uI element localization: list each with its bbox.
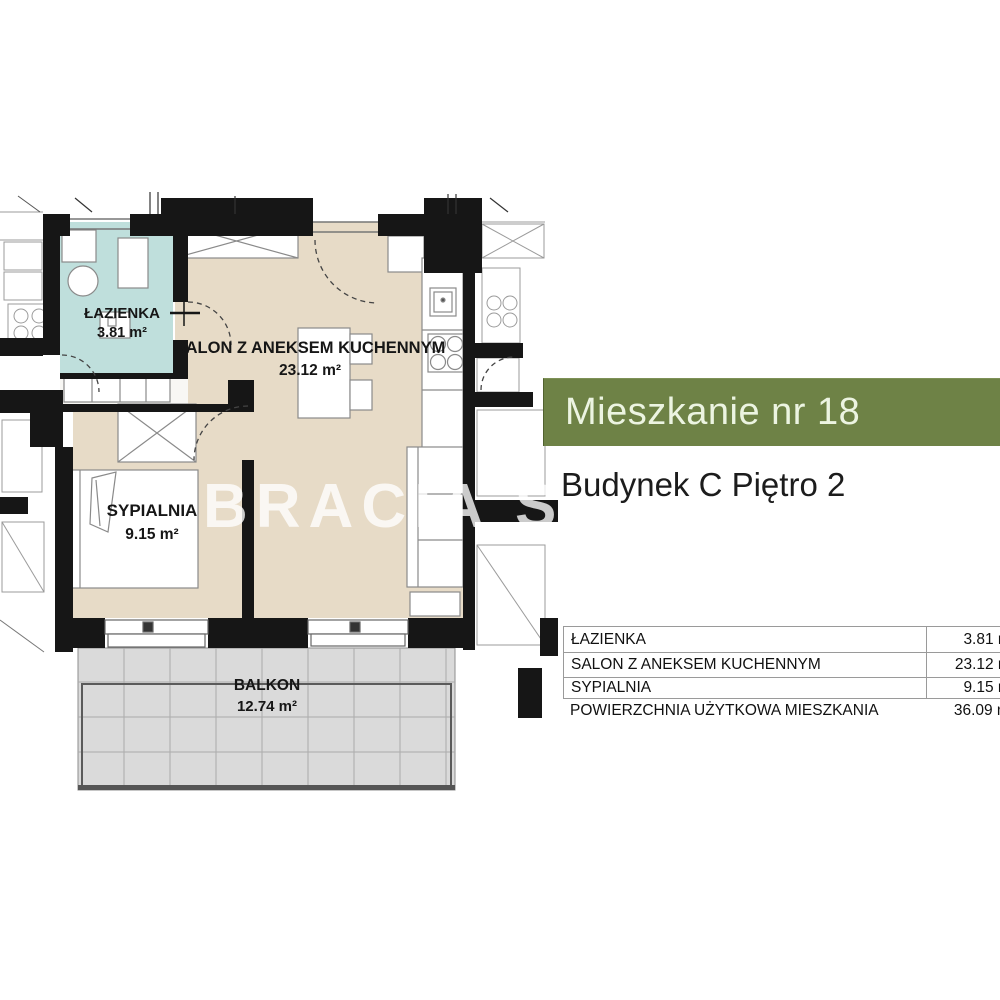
row-value: 3.81 m²: [926, 631, 1000, 649]
window-sypialnia: [105, 620, 208, 634]
table-row: SALON Z ANEKSEM KUCHENNYM 23.12 m²: [564, 653, 1000, 678]
floor-plan: ŁAZIENKA 3.81 m² SALON Z ANEKSEM KUCHENN…: [0, 0, 1000, 1000]
row-label: ŁAZIENKA: [571, 631, 646, 649]
row-value: 23.12 m²: [926, 656, 1000, 674]
apartment-header-bar: Mieszkanie nr 18: [543, 378, 1000, 446]
neighbor-right: [477, 222, 545, 645]
sypialnia-label: SYPIALNIA: [107, 501, 198, 520]
balkon-area: 12.74 m²: [237, 698, 297, 715]
building-floor-subtitle: Budynek C Piętro 2: [561, 466, 845, 504]
row-label: POWIERZCHNIA UŻYTKOWA MIESZKANIA: [570, 702, 879, 720]
chair: [350, 380, 372, 410]
row-label: SYPIALNIA: [571, 679, 651, 697]
balcony: [78, 648, 455, 790]
lazienka-area: 3.81 m²: [97, 325, 147, 341]
area-table-body: ŁAZIENKA 3.81 m² SALON Z ANEKSEM KUCHENN…: [563, 626, 1000, 699]
table-row: SYPIALNIA 9.15 m²: [564, 678, 1000, 699]
watermark: BRACIA SA: [203, 472, 617, 541]
balkon-label: BALKON: [234, 677, 300, 694]
table-row: ŁAZIENKA 3.81 m²: [564, 627, 1000, 653]
fridge: [388, 236, 424, 272]
side-table: [410, 592, 460, 616]
row-label: SALON Z ANEKSEM KUCHENNYM: [571, 656, 821, 674]
salon-label: SALON Z ANEKSEM KUCHENNYM: [175, 339, 446, 357]
row-value: 36.09 m²: [925, 702, 1000, 720]
salon-area: 23.12 m²: [279, 362, 341, 379]
bath-sink: [68, 266, 98, 296]
table-row-total: POWIERZCHNIA UŻYTKOWA MIESZKANIA 36.09 m…: [563, 699, 1000, 723]
row-value: 9.15 m²: [926, 679, 1000, 697]
sypialnia-area: 9.15 m²: [125, 526, 178, 543]
area-table: ŁAZIENKA 3.81 m² SALON Z ANEKSEM KUCHENN…: [563, 626, 1000, 723]
lazienka-label: ŁAZIENKA: [84, 305, 160, 322]
apartment-title: Mieszkanie nr 18: [544, 391, 860, 434]
shower-column: [118, 238, 148, 288]
hall-cabinet: [64, 378, 170, 402]
